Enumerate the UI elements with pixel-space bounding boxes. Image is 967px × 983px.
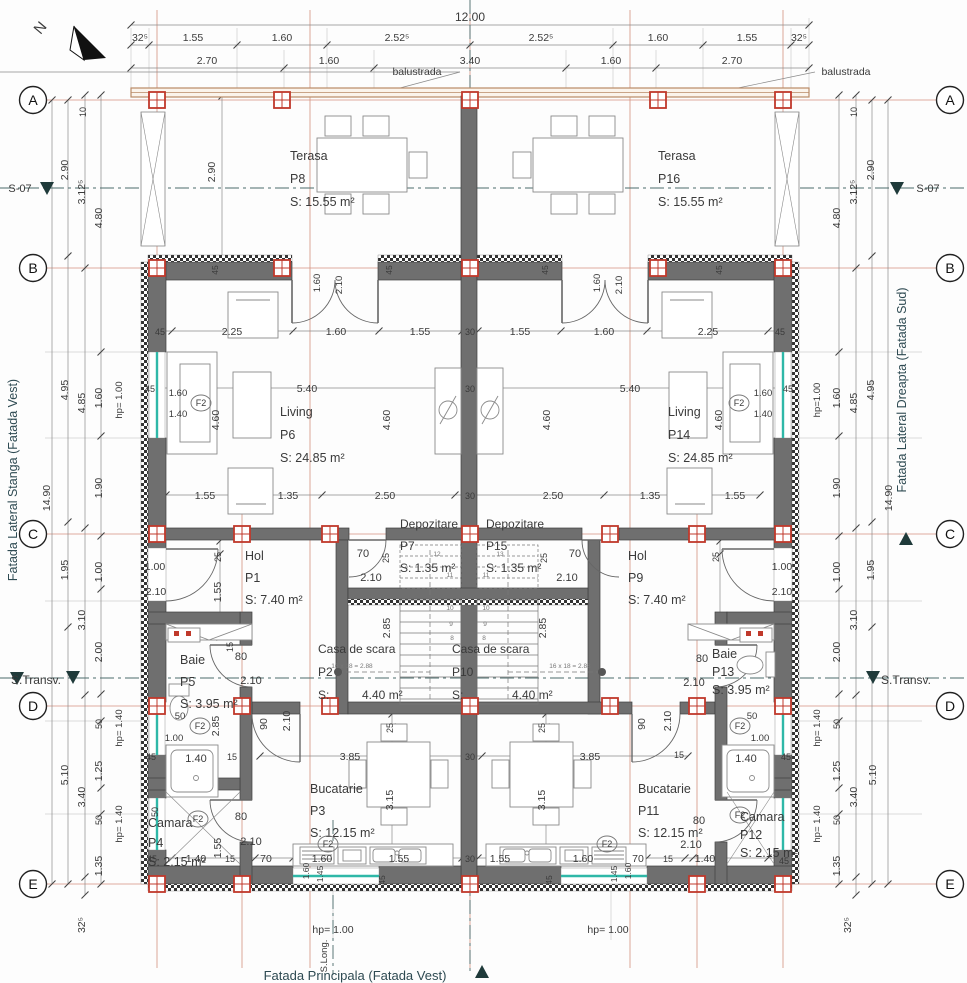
- room-label: Camara: [148, 816, 193, 830]
- dim-label: 1.55: [195, 490, 216, 502]
- room-area: S: 2.15 m²: [740, 846, 798, 860]
- dim-label: 45: [779, 856, 789, 866]
- room-number: P5: [180, 675, 195, 689]
- dim-label: 13: [496, 551, 504, 558]
- room-label: Terasa: [290, 149, 328, 163]
- dim-label: 2.00: [93, 642, 105, 663]
- window-type-label: F2: [734, 398, 745, 408]
- room-label: Casa de scara: [452, 642, 530, 656]
- dim-label: 5.10: [59, 765, 71, 786]
- dim-label: 2.85: [210, 716, 222, 737]
- dim-label: 1.40: [186, 853, 207, 865]
- dim-label: 1.55: [212, 582, 224, 603]
- room-area: 4.40 m²: [512, 688, 553, 702]
- dim-label: 1.60: [301, 862, 311, 879]
- dim-label: 4.85: [76, 393, 88, 414]
- window-type-label: F2: [602, 839, 613, 849]
- room-label: Terasa: [658, 149, 696, 163]
- dim-label: 45: [781, 752, 791, 762]
- dim-label: 1.40: [754, 409, 773, 420]
- dim-label: 4.95: [865, 380, 877, 401]
- room-number: P1: [245, 571, 260, 585]
- dim-label: 1.55: [389, 853, 410, 865]
- room-area: S: 7.40 m²: [245, 593, 303, 607]
- dim-label: hp= 1.40: [812, 709, 823, 746]
- dim-label: 1.90: [831, 478, 843, 499]
- axis-letter: B: [28, 260, 37, 276]
- facade-left-label: Fatada Lateral Stanga (Fatada Vest): [6, 379, 20, 581]
- dim-label: 2.90: [865, 160, 877, 181]
- room-area: S: 7.40 m²: [628, 593, 686, 607]
- room-label: Depozitare: [400, 517, 458, 531]
- dim-label: 2.10: [772, 586, 793, 598]
- dim-label: 2.10: [146, 586, 167, 598]
- dim-label: 3.40: [460, 55, 481, 67]
- dim-label: 1.90: [93, 478, 105, 499]
- dim-label: 1.60: [319, 55, 340, 67]
- dim-label: 8: [450, 635, 454, 642]
- terrace-table-right: [533, 138, 623, 192]
- room-area: S: 24.85 m²: [280, 451, 345, 465]
- dim-label: 16 x 18 = 2.88: [331, 663, 373, 670]
- dim-label: 9: [449, 621, 453, 628]
- dim-label: 2.70: [197, 55, 218, 67]
- dim-label: 1.60: [93, 388, 105, 409]
- section-transv-label: S.Transv.: [881, 673, 931, 687]
- dim-label: 2.50: [375, 490, 396, 502]
- dim-label: 45: [783, 384, 793, 394]
- dim-label: 30: [465, 327, 475, 337]
- dim-label: 1.55: [212, 838, 224, 859]
- dim-label: 15: [225, 854, 235, 864]
- dim-label: 70: [260, 853, 272, 865]
- dim-label: 8: [482, 635, 486, 642]
- dim-label: 25: [537, 723, 547, 733]
- dim-label: 2.70: [722, 55, 743, 67]
- room-area: S: 24.85 m²: [668, 451, 733, 465]
- dim-label: 1.60: [594, 326, 615, 338]
- dim-label: 30: [465, 491, 475, 501]
- room-label: Living: [668, 405, 701, 419]
- dim-label: 14.90: [41, 485, 53, 511]
- dim-label: 3.10: [848, 610, 860, 631]
- axis-letter: A: [945, 92, 955, 108]
- room-area: S: 1.35 m²: [486, 561, 541, 575]
- dim-label: 15: [674, 750, 684, 760]
- dim-label: hp= 1.40: [114, 709, 125, 746]
- dim-label: 1.00: [831, 562, 843, 583]
- dim-label: 9: [483, 621, 487, 628]
- window-type-label: F2: [196, 398, 207, 408]
- dim-label: hp= 1.00: [312, 924, 353, 936]
- dim-label: 45: [147, 854, 157, 864]
- dim-label: 3.15: [384, 790, 396, 811]
- dim-label: 1.25: [93, 761, 105, 782]
- coffee-table-left: [233, 372, 271, 438]
- dim-label: 1.60: [754, 388, 773, 399]
- dim-label: 1.00: [772, 561, 793, 573]
- dim-label: 45: [155, 327, 165, 337]
- axis-letter: D: [28, 698, 38, 714]
- dim-label: 32⁵: [791, 32, 807, 44]
- room-number: P10: [452, 665, 474, 679]
- section-transv-label: S.Transv.: [11, 673, 61, 687]
- dim-label: 1.60: [312, 853, 333, 865]
- dim-label: 1.40: [695, 853, 716, 865]
- dim-label: 2.10: [360, 572, 381, 584]
- section-s07-label: S-07: [8, 183, 31, 195]
- dim-label: 1.55: [183, 32, 204, 44]
- balustrade-label: balustrada: [392, 66, 441, 78]
- dim-label: 1.35: [831, 856, 843, 877]
- dim-label: 2.90: [59, 160, 71, 181]
- vanity-left: [168, 628, 200, 642]
- dim-label: 1.60: [592, 274, 603, 293]
- dim-label: 2.00: [831, 642, 843, 663]
- dim-label: hp= 1.40: [812, 805, 823, 842]
- dim-label: 2.52⁵: [385, 32, 410, 44]
- dim-label: 1.95: [865, 560, 877, 581]
- dim-label: 2.52⁵: [529, 32, 554, 44]
- dim-label: 1.60: [831, 388, 843, 409]
- axis-letter: D: [945, 698, 955, 714]
- dim-label: 25: [213, 552, 223, 562]
- room-number: P8: [290, 172, 305, 186]
- dim-label: 32⁵: [842, 917, 854, 933]
- room-label: Baie: [712, 647, 737, 661]
- dim-label: 15: [225, 642, 235, 652]
- dim-label: 45: [775, 327, 785, 337]
- dim-label: 3.12⁵: [848, 180, 860, 205]
- dim-label: hp=1.00: [812, 383, 823, 418]
- dim-label: 1.55: [510, 326, 531, 338]
- dim-label: 1.40: [185, 753, 206, 765]
- dim-label: 1.60: [648, 32, 669, 44]
- dim-label: 12.00: [455, 10, 485, 24]
- room-number: P12: [740, 828, 762, 842]
- dim-label: 50: [832, 815, 842, 825]
- dim-label: S:: [452, 688, 463, 702]
- section-arrow-transv-right: [866, 671, 880, 684]
- dim-label: 80: [696, 653, 708, 665]
- room-label: Living: [280, 405, 313, 419]
- dim-label: 3.10: [76, 610, 88, 631]
- dim-label: 12: [433, 551, 441, 558]
- dim-label: 15: [663, 854, 673, 864]
- dim-label: 2.10: [334, 276, 345, 295]
- dim-label: 25: [711, 552, 721, 562]
- dim-label: 10: [849, 107, 859, 117]
- window-type-label: F2: [735, 810, 746, 820]
- dim-label: 2.50: [543, 490, 564, 502]
- dim-label: 3.12⁵: [76, 180, 88, 205]
- dim-label: 15: [227, 752, 237, 762]
- dim-label: 10: [78, 107, 88, 117]
- window-type-label: F2: [195, 721, 206, 731]
- room-label: Depozitare: [486, 517, 544, 531]
- dim-label: 70: [632, 853, 644, 865]
- dim-label: 11: [483, 572, 490, 579]
- stair-start-marker-right: [598, 668, 606, 676]
- dim-label: 1.55: [725, 490, 746, 502]
- room-number: P14: [668, 428, 690, 442]
- balustrade-label: balustrada: [821, 66, 870, 78]
- dim-label: 1.00: [145, 561, 166, 573]
- dim-label: 1.60: [573, 853, 594, 865]
- dim-label: 3.15: [536, 790, 548, 811]
- room-label: Casa de scara: [318, 642, 396, 656]
- axis-letter: E: [945, 876, 954, 892]
- dim-label: 45: [544, 875, 554, 885]
- room-number: P7: [400, 539, 415, 553]
- dim-label: 5.40: [620, 383, 641, 395]
- room-area: S: 12.15 m²: [638, 826, 703, 840]
- dim-label: 30: [465, 854, 475, 864]
- dim-label: hp= 1.00: [587, 924, 628, 936]
- dim-label: 1.60: [623, 862, 633, 879]
- axis-letter: C: [28, 526, 38, 542]
- party-wall: [461, 96, 477, 884]
- dim-label: 45: [145, 384, 155, 394]
- dim-label: 2.85: [537, 618, 549, 639]
- axis-letter: B: [945, 260, 954, 276]
- dim-label: 3.85: [580, 751, 601, 763]
- room-number: P16: [658, 172, 680, 186]
- axis-letter: C: [945, 526, 955, 542]
- dim-label: 45: [714, 265, 724, 275]
- terrace-table-left: [317, 138, 407, 192]
- dim-label: 4.80: [831, 208, 843, 229]
- dim-label: 2.10: [240, 836, 261, 848]
- dim-label: 1.55: [410, 326, 431, 338]
- dim-label: 5.10: [867, 765, 879, 786]
- room-label: Hol: [245, 549, 264, 563]
- dim-label: hp= 1.40: [114, 805, 125, 842]
- kitchen-table-left: [367, 742, 430, 807]
- facade-right-label: Fatada Lateral Dreapta (Fatada Sud): [895, 288, 909, 493]
- dim-label: 2.90: [206, 162, 218, 183]
- floor-plan-svg: 12.0032⁵1.551.602.52⁵2.52⁵1.601.5532⁵2.7…: [0, 0, 967, 983]
- dim-label: 1.40: [169, 409, 188, 420]
- dim-label: 1.35: [93, 856, 105, 877]
- dim-label: 90: [636, 718, 648, 730]
- dim-label: 4.60: [713, 410, 725, 431]
- dim-label: 45: [377, 875, 387, 885]
- room-area: 4.40 m²: [362, 688, 403, 702]
- dim-label: 11: [447, 572, 454, 579]
- dim-label: 45: [540, 265, 550, 275]
- dim-label: 1.55: [737, 32, 758, 44]
- facade-arrow-front: [475, 965, 489, 978]
- room-number: P4: [148, 836, 163, 850]
- dim-label: 1.35: [640, 490, 661, 502]
- dim-label: 50: [94, 719, 104, 729]
- dim-label: 90: [258, 718, 270, 730]
- dim-label: 2.10: [281, 711, 293, 732]
- dim-label: 3.85: [340, 751, 361, 763]
- dim-label: 16 x 18 = 2.88: [549, 663, 591, 670]
- dim-label: 32⁵: [132, 32, 148, 44]
- dim-label: 2.85: [381, 618, 393, 639]
- dim-label: 1.55: [490, 853, 511, 865]
- room-label: Hol: [628, 549, 647, 563]
- dim-label: 45: [384, 265, 394, 275]
- room-label: Camara: [740, 810, 785, 824]
- axis-letter: A: [28, 92, 38, 108]
- dim-label: 4.85: [848, 393, 860, 414]
- dim-label: 25: [539, 553, 549, 563]
- dim-label: 45: [146, 752, 156, 762]
- dim-label: 1.00: [93, 562, 105, 583]
- dim-label: 1.00: [165, 733, 184, 744]
- dim-label: 25: [385, 723, 395, 733]
- toilet-right: [766, 652, 775, 677]
- axis-letter: E: [28, 876, 37, 892]
- dim-label: 50: [832, 719, 842, 729]
- dim-label: 1.60: [326, 326, 347, 338]
- section-s07-label: S-07: [916, 183, 939, 195]
- dim-label: 1.60: [272, 32, 293, 44]
- dim-label: 4.60: [381, 410, 393, 431]
- dim-label: 80: [235, 651, 247, 663]
- room-label: Baie: [180, 653, 205, 667]
- dim-label: 4.60: [210, 410, 222, 431]
- dim-label: 1.60: [169, 388, 188, 399]
- dim-label: 45: [210, 265, 220, 275]
- dim-label: 50: [175, 711, 186, 722]
- dim-label: 32⁵: [76, 917, 88, 933]
- dim-label: 1.25: [831, 761, 843, 782]
- dim-label: 3.40: [848, 787, 860, 808]
- north-arrow: [70, 26, 106, 60]
- dim-label: 2.10: [240, 675, 261, 687]
- dim-label: 1.60: [312, 274, 323, 293]
- room-area: S: 15.55 m²: [290, 195, 355, 209]
- room-area: S: 3.95 m²: [180, 697, 238, 711]
- dim-label: 1.95: [59, 560, 71, 581]
- window-type-label: F2: [735, 721, 746, 731]
- floor-plan-page: 12.0032⁵1.551.602.52⁵2.52⁵1.601.5532⁵2.7…: [0, 0, 967, 983]
- room-number: P3: [310, 804, 325, 818]
- dim-label: 50: [747, 711, 758, 722]
- dim-label: 1.00: [751, 733, 770, 744]
- dim-label: 1.35: [278, 490, 299, 502]
- room-number: P9: [628, 571, 643, 585]
- room-label: Bucatarie: [310, 782, 363, 796]
- dim-label: 14.90: [883, 485, 895, 511]
- dim-label: 30: [465, 752, 475, 762]
- dim-label: 2.10: [614, 276, 625, 295]
- dim-label: 2.25: [698, 326, 719, 338]
- dim-label: 5.40: [297, 383, 318, 395]
- dim-label: 1.60: [601, 55, 622, 67]
- dim-label: 25: [381, 553, 391, 563]
- section-long-label: S.Long.: [319, 940, 330, 973]
- window-type-label: F2: [193, 814, 204, 824]
- dim-label: 70: [357, 548, 369, 560]
- room-area: S: 15.55 m²: [658, 195, 723, 209]
- section-arrow-s07-right: [890, 182, 904, 195]
- dim-label: 80: [235, 811, 247, 823]
- dim-label: 70: [569, 548, 581, 560]
- vanity-right: [740, 628, 772, 642]
- room-number: P11: [638, 804, 659, 818]
- dim-label: 2.10: [680, 839, 701, 851]
- dim-label: 30: [465, 384, 475, 394]
- dim-label: 1.45: [609, 865, 619, 882]
- room-number: P13: [712, 665, 734, 679]
- dim-label: 2.10: [662, 711, 674, 732]
- dim-label: hp= 1.00: [114, 381, 125, 418]
- room-area: S: 12.15 m²: [310, 826, 375, 840]
- dim-label: 50: [150, 807, 160, 817]
- dim-label: 2.10: [556, 572, 577, 584]
- dim-label: S:: [318, 688, 329, 702]
- dim-label: 10: [446, 605, 454, 612]
- facade-front-label: Fatada Principala (Fatada Vest): [264, 968, 447, 983]
- dim-label: 50: [94, 815, 104, 825]
- dim-label: 10: [482, 605, 490, 612]
- room-number: P6: [280, 428, 295, 442]
- dim-label: 1.45: [315, 865, 325, 882]
- dim-label: 4.95: [59, 380, 71, 401]
- dim-label: 3.40: [76, 787, 88, 808]
- room-area: S: 3.95 m²: [712, 683, 770, 697]
- north-label: N: [31, 18, 51, 37]
- dim-label: 2.10: [683, 677, 704, 689]
- window-type-label: F2: [323, 839, 334, 849]
- dim-label: 2.25: [222, 326, 243, 338]
- room-label: Bucatarie: [638, 782, 691, 796]
- dim-label: 4.80: [93, 208, 105, 229]
- dim-label: 1.40: [735, 753, 756, 765]
- dim-label: 4.60: [541, 410, 553, 431]
